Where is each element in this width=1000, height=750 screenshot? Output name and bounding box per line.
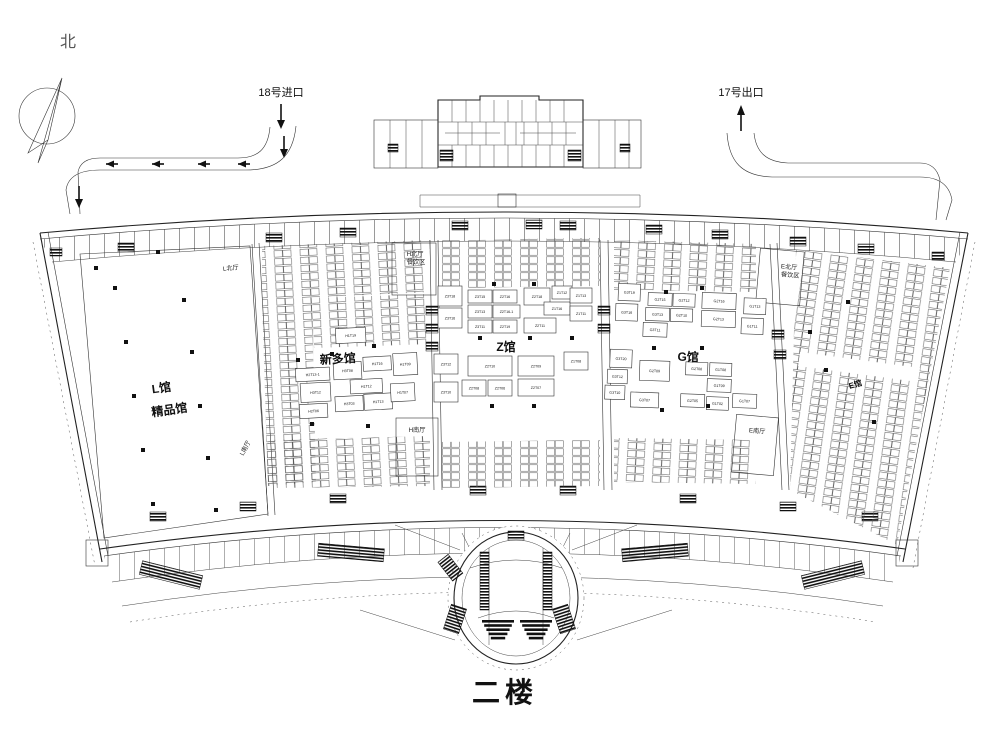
booth-label: Z2T08: [469, 386, 479, 390]
booth-label: G2T15: [655, 298, 666, 302]
booth-label: G1T11: [747, 324, 758, 328]
column-marker: [124, 340, 128, 344]
escalator-right: [543, 552, 552, 610]
booth-label: G3T19: [624, 291, 635, 295]
up-arrow-icon: [737, 105, 745, 131]
booth-label: G3T07: [639, 398, 650, 402]
column-marker: [151, 502, 155, 506]
seating-row: [529, 637, 543, 640]
booth-label: H2T06: [308, 409, 319, 414]
seating-row: [520, 620, 552, 623]
page-title: 二楼: [472, 677, 538, 708]
ramp-down-arrow-icon: [280, 136, 288, 158]
lobby-label: 餐饮区: [781, 270, 800, 280]
lobby-label: E北厅: [781, 262, 798, 271]
floor-plan-page: 北 18号进口 17号出口: [0, 0, 1000, 750]
column-marker: [206, 456, 210, 460]
ramp-outer-edge: [727, 133, 952, 220]
exit-17-label: 17号出口: [718, 85, 763, 99]
seating-row: [489, 633, 508, 636]
seating-row: [484, 624, 512, 627]
exit-ramp-17: 17号出口: [718, 85, 952, 220]
booth-label: G3T13: [652, 313, 663, 317]
booth-label: G3T16: [621, 310, 632, 314]
booth-label: Z1T08: [571, 359, 581, 363]
booth-label: Z3T11: [475, 325, 485, 329]
booth-label: G3T11: [650, 328, 661, 332]
booth-label: G1T02: [712, 402, 723, 406]
booth-label: H3T12: [310, 390, 321, 395]
booth-label: Z2T09: [531, 364, 541, 368]
corner-tower-left: [86, 540, 108, 566]
booth-label: G2T08: [691, 367, 702, 371]
booth-label: Z3T15: [475, 295, 485, 299]
booth-label: Z3T10: [441, 390, 451, 394]
bottom-band-stair-blocks: [150, 486, 878, 521]
lobby-label: 餐饮区: [407, 258, 426, 266]
booth-label: Z3T18: [445, 294, 455, 298]
booth-label: H3T08: [342, 369, 353, 374]
booth-label: Z1T13: [576, 294, 586, 298]
lobby-label: E南厅: [749, 426, 766, 435]
booth-label: H1T16: [372, 362, 383, 367]
lobby-label: H南厅: [409, 426, 426, 434]
seating-row: [524, 628, 547, 631]
atrium-top-stair: [508, 531, 524, 540]
booth-label: H2T13-1: [306, 372, 320, 377]
booth-label: Z3T12: [441, 362, 451, 366]
ramp-inner-edge: [78, 127, 270, 214]
north-label: 北: [60, 33, 76, 51]
booth-label: Z2T19: [500, 325, 510, 329]
booth-label: G3T10: [609, 391, 620, 395]
booth-label: Z2T18: [532, 295, 542, 299]
booth-label: Z3T16: [445, 316, 455, 320]
hall-l-label: L馆: [151, 379, 172, 397]
column-marker: [156, 250, 160, 254]
booth-label: G3T12: [612, 375, 623, 379]
column-marker: [198, 404, 202, 408]
ramp-inner-edge: [754, 133, 940, 220]
seating-row: [482, 620, 514, 623]
escalator-left: [480, 552, 489, 610]
booth-label: Z1T16: [552, 307, 562, 311]
hall-g-booths: G3T19G3T16G2T15G2T12G3T13G2T10G3T11G2T16…: [604, 283, 766, 411]
booth-label: Z2T07: [531, 386, 541, 390]
entrance-18-label: 18号进口: [258, 86, 303, 99]
booth-label: Z1T11: [576, 312, 586, 316]
lobby-label: H北厅: [407, 250, 424, 258]
seating-row: [491, 637, 505, 640]
booth-label: Z2T16-1: [500, 310, 514, 314]
north-building: [374, 96, 641, 207]
booth-label: G2T10: [676, 313, 687, 317]
column-marker: [190, 350, 194, 354]
column-marker: [113, 286, 117, 290]
booth-label: Z3T13: [475, 310, 485, 314]
booth-label: G1T09: [714, 384, 725, 388]
column-marker: [214, 508, 218, 512]
seating-row: [486, 628, 509, 631]
ramp-end-down-arrow-icon: [75, 186, 83, 208]
compass-needle-icon: [28, 78, 62, 163]
left-arrow-icons: [106, 161, 250, 168]
booth-label: G2T12: [679, 298, 690, 302]
booth-label: G1T07: [739, 399, 750, 403]
booth-label: Z2T10: [485, 364, 495, 368]
booth-label: H1T09: [400, 362, 411, 367]
down-arrow-icon: [277, 104, 285, 129]
booth-label: G1T13: [749, 304, 760, 308]
booth-label: G3T20: [615, 357, 626, 361]
hall-l-subtitle: 精品馆: [150, 400, 188, 420]
column-marker: [141, 448, 145, 452]
column-marker: [94, 266, 98, 270]
booth-label: G2T09: [649, 369, 660, 373]
booth-label: Z2T11: [535, 324, 545, 328]
booth-label: Z2T16: [500, 295, 510, 299]
seating-row: [527, 633, 546, 636]
lobby-label: L北厅: [223, 263, 240, 273]
ramp-outer-edge: [66, 126, 296, 214]
booth-label: G1T08: [715, 368, 726, 372]
booth-label: G2T05: [687, 399, 698, 403]
north-compass: 北: [19, 33, 76, 163]
floorplan-svg: 北 18号进口 17号出口: [0, 0, 1000, 750]
booth-label: G2T13: [713, 317, 724, 321]
column-marker: [182, 298, 186, 302]
booth-label: Z1T12: [557, 291, 567, 295]
booth-label: Z2T06: [495, 386, 505, 390]
booth-label: H1T07: [397, 390, 408, 395]
booth-label: H3T03: [344, 402, 355, 407]
hall-xinduo-label: 新多馆: [319, 350, 356, 367]
booth-label: G2T16: [713, 299, 724, 303]
compass-circle-icon: [19, 88, 75, 144]
lobby-label: L南厅: [238, 439, 252, 457]
entrance-ramp-18: 18号进口: [66, 86, 304, 214]
hall-l-outline: [80, 246, 268, 538]
booth-label: H1T19: [345, 334, 356, 339]
booth-label: H1T12: [361, 384, 372, 389]
seating-row: [522, 624, 550, 627]
column-marker: [132, 394, 136, 398]
hall-g-label: G馆: [677, 349, 699, 365]
hall-z-label: Z馆: [496, 339, 515, 354]
booth-label: H1T13: [373, 400, 384, 405]
